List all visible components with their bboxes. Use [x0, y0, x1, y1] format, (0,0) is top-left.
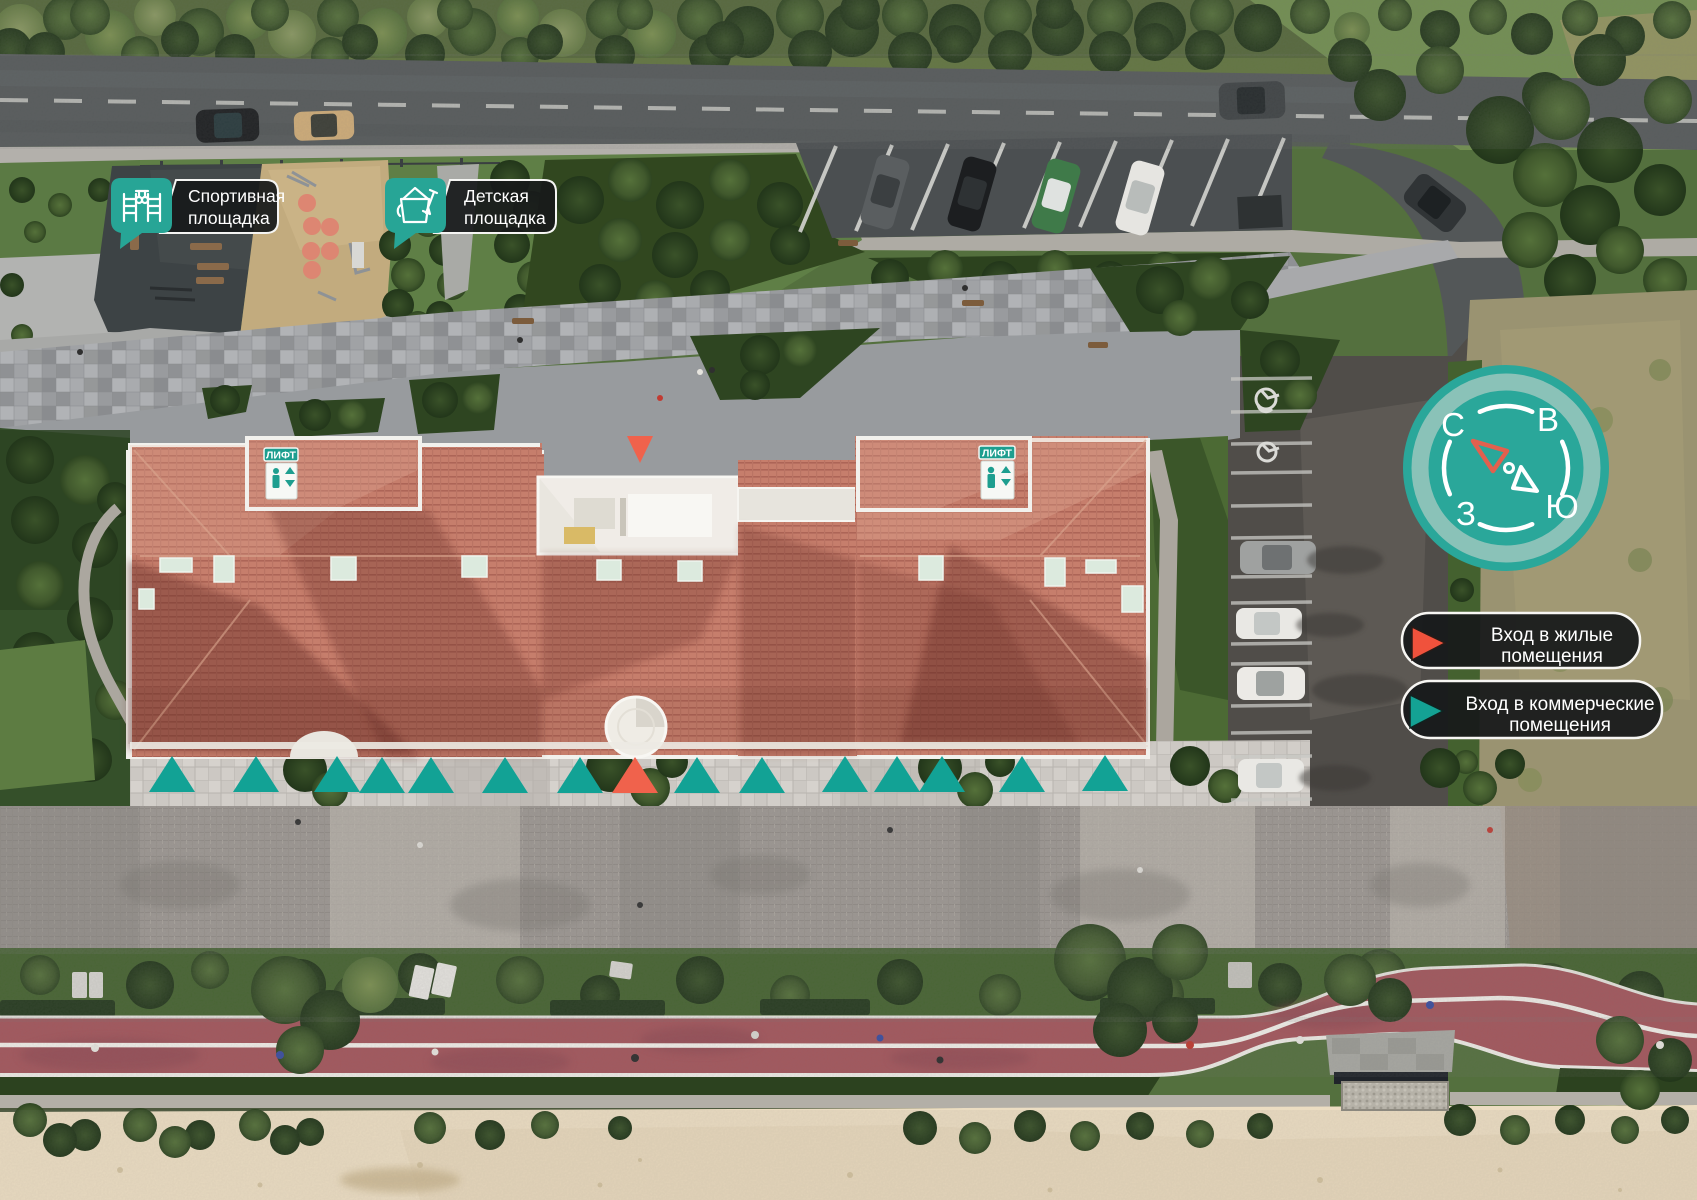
svg-text:Ю: Ю: [1545, 488, 1578, 525]
svg-text:С: С: [1441, 406, 1465, 443]
svg-text:Вход в жилые: Вход в жилые: [1491, 625, 1613, 646]
svg-text:помещения: помещения: [1509, 715, 1611, 736]
svg-text:площадка: площадка: [464, 208, 546, 228]
svg-text:помещения: помещения: [1501, 646, 1603, 667]
svg-text:В: В: [1537, 401, 1559, 438]
svg-text:Вход в коммерческие: Вход в коммерческие: [1465, 694, 1654, 715]
svg-text:З: З: [1456, 495, 1476, 532]
svg-text:Спортивная: Спортивная: [188, 186, 285, 206]
svg-text:ЛИФТ: ЛИФТ: [266, 450, 296, 462]
svg-text:площадка: площадка: [188, 208, 270, 228]
svg-text:Детская: Детская: [464, 186, 529, 206]
svg-text:ЛИФТ: ЛИФТ: [982, 448, 1012, 460]
